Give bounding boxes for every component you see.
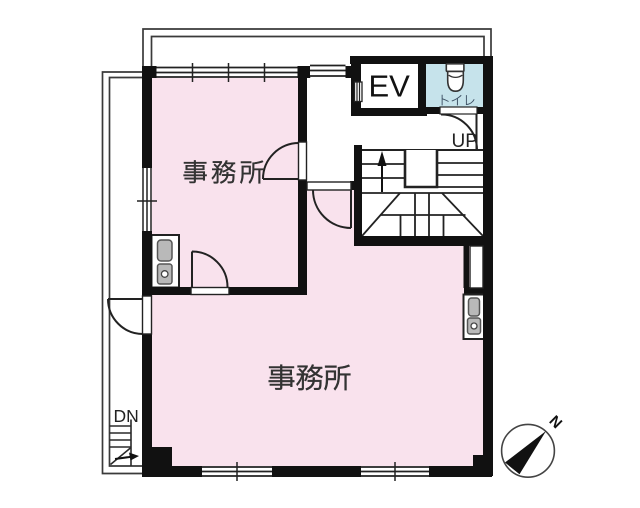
- svg-text:DN: DN: [114, 406, 139, 426]
- svg-text:EV: EV: [369, 69, 411, 104]
- svg-text:UP: UP: [452, 131, 478, 152]
